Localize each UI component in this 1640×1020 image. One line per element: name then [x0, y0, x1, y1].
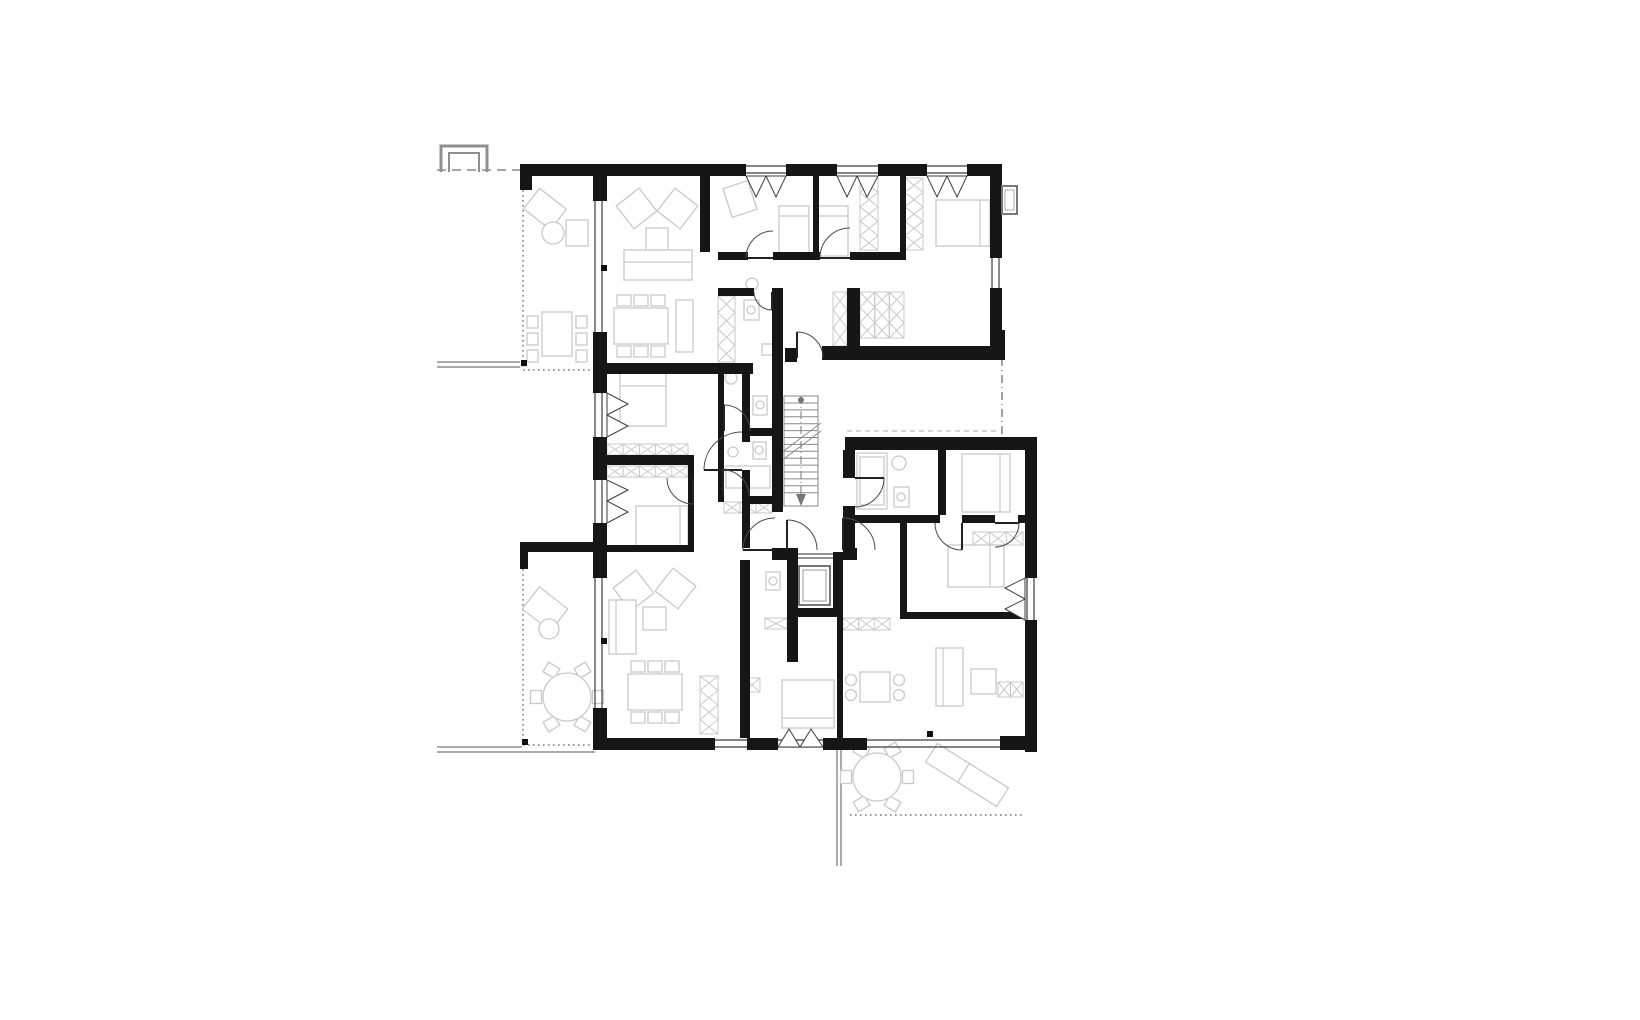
casement-triangle [1005, 578, 1025, 599]
furniture-item [576, 316, 587, 328]
door-swing-arc [797, 332, 823, 358]
furniture-item [631, 712, 645, 723]
furniture-item [634, 295, 648, 306]
furniture-item [936, 200, 990, 246]
furniture-item [779, 206, 809, 256]
furniture-item [676, 300, 693, 352]
furniture-round-item [846, 675, 857, 686]
wall-segment [1025, 620, 1037, 752]
casement-triangle [927, 176, 947, 197]
wall-segment [700, 176, 710, 252]
floor-plan-drawing [0, 0, 1640, 1020]
wall-segment [843, 450, 855, 478]
furniture-item [936, 648, 963, 706]
column-dot [522, 739, 528, 745]
furniture-item [643, 607, 666, 630]
furniture-round-item [747, 306, 755, 314]
casement-triangle [800, 729, 823, 747]
stair-walkline-start [798, 397, 804, 403]
furniture-item [651, 295, 665, 306]
staircase [781, 396, 821, 506]
wall-segment [900, 523, 907, 613]
wall-segment [878, 164, 927, 176]
wall-segment [593, 374, 607, 393]
furniture-item [527, 333, 538, 345]
wall-segment [520, 542, 528, 569]
door-swing-arc [787, 520, 817, 550]
wall-segment [593, 437, 607, 480]
wall-segment [520, 164, 532, 190]
furniture-item [782, 680, 834, 728]
furniture-item [903, 771, 914, 784]
furniture-item [816, 206, 848, 256]
wall-segment [990, 164, 1002, 258]
wall-segment [600, 738, 715, 750]
wall-segment [813, 176, 819, 260]
wall-segment [823, 738, 867, 750]
chimney-outline [441, 146, 487, 172]
furniture-item [617, 295, 631, 306]
furniture-item [566, 220, 588, 246]
column-dot [521, 360, 527, 366]
wall-segment [786, 164, 837, 176]
furniture-round-item [897, 493, 905, 501]
furniture-item [524, 188, 567, 229]
wall-segment [785, 348, 797, 362]
furniture-round-item [853, 753, 901, 801]
floor-plan-canvas [0, 0, 1640, 1020]
furniture-round-item [539, 619, 559, 639]
furniture-round-item [894, 690, 905, 701]
chimney-symbol [441, 146, 487, 172]
wall-segment [843, 548, 857, 560]
furniture-item [527, 350, 538, 362]
furniture-round-item [728, 447, 738, 457]
elevator [798, 554, 833, 605]
wall-segment [962, 515, 995, 523]
furniture-item [614, 308, 668, 344]
furniture-item [962, 454, 1010, 512]
casement-triangle [766, 176, 786, 197]
column-dot [601, 638, 607, 644]
furniture-item [616, 188, 657, 229]
chimney-outline [449, 153, 479, 172]
wall-segment [773, 252, 820, 260]
wall-segment [750, 428, 772, 436]
furniture-item [576, 333, 587, 345]
wall-segment [718, 288, 754, 296]
furniture-round-item [769, 577, 777, 585]
wall-segment [749, 496, 772, 504]
casement-triangle [607, 480, 628, 501]
wall-segment [593, 176, 607, 201]
furniture-item [576, 350, 587, 362]
furniture-item [648, 661, 662, 672]
casement-triangle [607, 501, 628, 523]
wall-segment [837, 617, 843, 738]
wall-segment [593, 363, 753, 374]
wall-segment [855, 515, 940, 523]
furniture-item [948, 545, 1004, 587]
wall-segment [900, 176, 906, 260]
furniture-item [665, 712, 679, 723]
wall-segment [833, 552, 843, 616]
wall-segment [787, 617, 798, 662]
casement-triangle [837, 176, 857, 197]
facade-vent [1002, 186, 1017, 214]
furniture-item [624, 250, 692, 280]
wall-segment [520, 542, 607, 552]
wall-segment [607, 545, 694, 552]
furniture-item [860, 457, 884, 505]
wall-segment [845, 437, 1037, 450]
wall-segment [742, 368, 750, 442]
furniture-item [651, 346, 665, 357]
casement-triangle [947, 176, 967, 197]
wall-segment [847, 288, 860, 360]
furniture-item [542, 312, 572, 356]
furniture-item [657, 188, 698, 229]
wall-segment [787, 548, 798, 617]
furniture-item [841, 771, 852, 784]
wall-segment [520, 164, 746, 176]
furniture-item [617, 346, 631, 357]
wall-segment [593, 332, 607, 363]
furniture-item [531, 691, 542, 704]
furniture-round-item [894, 675, 905, 686]
wall-segment [843, 506, 855, 548]
furniture-item [860, 672, 890, 702]
door-swing-arc [746, 231, 773, 258]
furniture-item [527, 316, 538, 328]
furniture-item [634, 346, 648, 357]
furniture-round-item [892, 456, 906, 470]
wall-segment [607, 455, 693, 465]
wall-segment [900, 612, 1025, 619]
wall-segment [938, 450, 946, 515]
vent-box-inner [1005, 190, 1014, 210]
furniture-item [631, 661, 645, 672]
wall-segment [850, 252, 905, 260]
column-dot [927, 731, 933, 737]
furniture-item [620, 372, 666, 426]
furniture-item [665, 661, 679, 672]
wall-segment [740, 560, 750, 738]
furniture-item [971, 669, 996, 694]
furniture-item [648, 712, 662, 723]
furniture-round-item [543, 673, 591, 721]
furniture-item [646, 228, 668, 250]
furniture-round-item [756, 401, 764, 409]
furniture-round-item [846, 690, 857, 701]
wall-segment [1025, 450, 1037, 578]
furniture-round-item [755, 446, 763, 454]
furniture-item [762, 344, 773, 355]
wall-segment [993, 330, 1005, 346]
casement-triangle [778, 729, 800, 747]
furniture-item [655, 568, 696, 609]
furniture-round-item [542, 222, 564, 244]
hatch-strip [700, 676, 718, 734]
column-dot [601, 265, 607, 271]
wall-segment [747, 738, 778, 750]
furniture-item [609, 600, 636, 654]
furniture-item [958, 763, 1009, 806]
wall-segment [1018, 515, 1025, 523]
furniture-item [628, 674, 682, 710]
wall-segment [772, 288, 783, 512]
hatch-strip [718, 296, 735, 362]
wall-segment [718, 252, 748, 260]
elevator-cab-inner [803, 570, 826, 601]
wall-segment [787, 608, 843, 617]
